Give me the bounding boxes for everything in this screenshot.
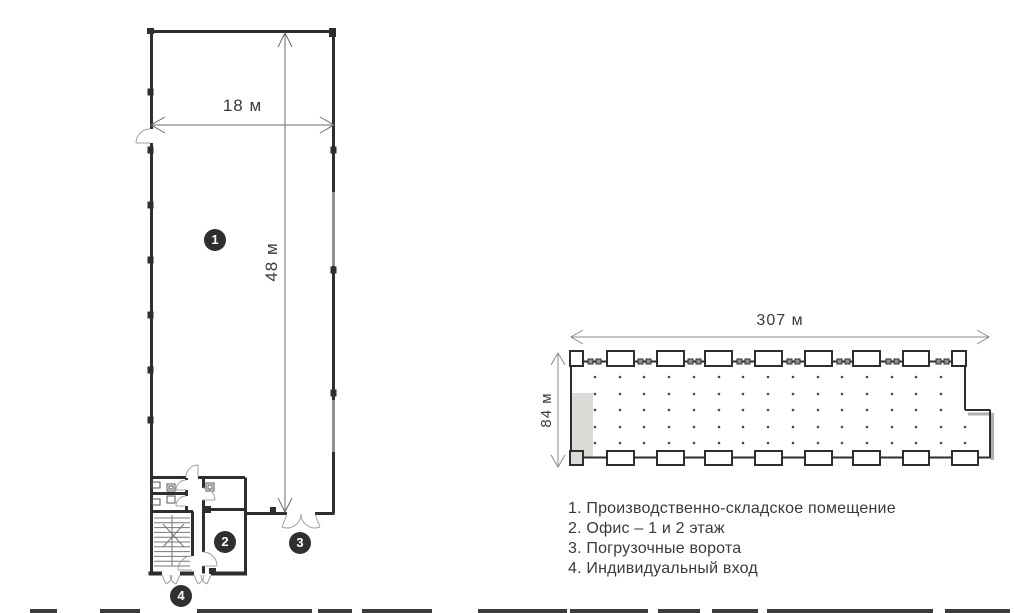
unit-width-dimension xyxy=(151,117,334,133)
legend-item-gates: 3. Погрузочные ворота xyxy=(568,539,896,559)
marker-individual-entrance: 4 xyxy=(170,585,192,607)
marker-loading-gate: 3 xyxy=(289,532,311,554)
plan-page: 18 м 48 м 307 м 84 м 1 2 3 4 1. Производ… xyxy=(0,0,1014,613)
marker-production-area: 1 xyxy=(204,229,226,251)
site-outline-walls xyxy=(570,362,991,459)
site-width-label: 307 м xyxy=(571,312,989,330)
door-swing-arcs xyxy=(136,129,320,584)
site-width-dimension xyxy=(571,330,989,344)
office-block-walls xyxy=(149,478,248,576)
site-top-bays xyxy=(570,351,966,366)
site-unit-highlight xyxy=(571,393,593,457)
site-bottom-bays xyxy=(570,451,978,465)
legend-item-entrance: 4. Индивидуальный вход xyxy=(568,559,896,579)
site-height-label: 84 м xyxy=(538,382,558,438)
unit-width-label: 18 м xyxy=(150,96,335,116)
marker-office: 2 xyxy=(214,531,236,553)
site-column-dots xyxy=(594,376,967,445)
legend-item-production: 1. Производственно-складское помещение xyxy=(568,499,896,519)
plan-legend: 1. Производственно-складское помещение 2… xyxy=(568,499,896,579)
unit-height-label: 48 м xyxy=(262,234,282,290)
legend-item-office: 2. Офис – 1 и 2 этаж xyxy=(568,519,896,539)
